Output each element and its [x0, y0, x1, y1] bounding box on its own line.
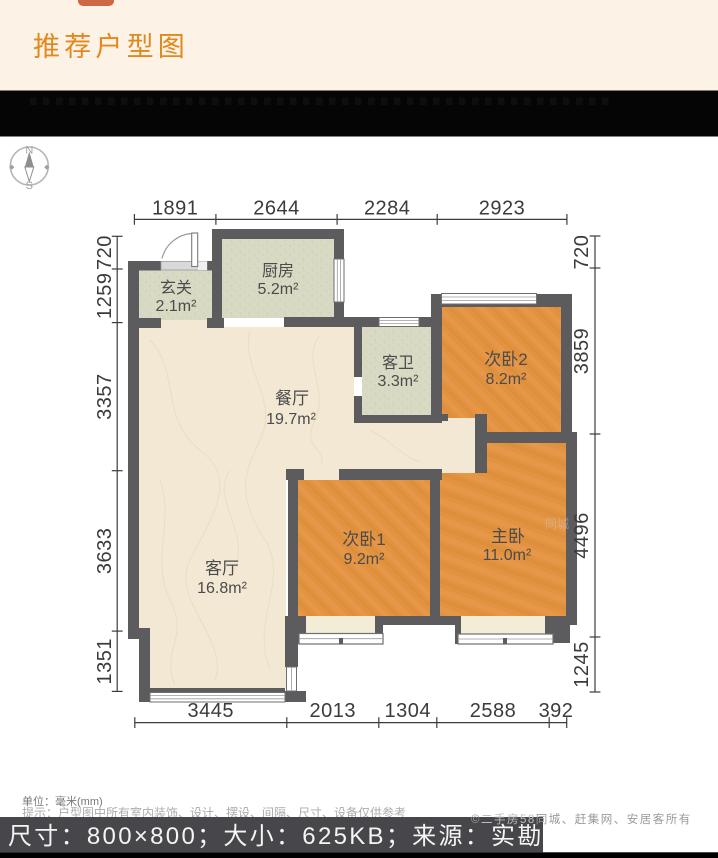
svg-text:11.0m²: 11.0m² — [483, 547, 532, 564]
svg-text:2588: 2588 — [470, 700, 517, 722]
svg-text:3445: 3445 — [188, 700, 235, 722]
svg-text:3859: 3859 — [571, 328, 593, 375]
svg-text:餐厅: 餐厅 — [275, 389, 309, 408]
svg-text:2284: 2284 — [364, 198, 411, 220]
svg-text:3357: 3357 — [94, 373, 116, 420]
svg-text:次卧2: 次卧2 — [484, 350, 527, 369]
svg-text:720: 720 — [571, 235, 593, 270]
svg-text:尺寸：800×800；大小：625KB；来源：实勘: 尺寸：800×800；大小：625KB；来源：实勘 — [8, 823, 544, 850]
svg-text:2923: 2923 — [479, 198, 526, 220]
svg-text:720: 720 — [94, 235, 116, 270]
svg-text:2013: 2013 — [310, 700, 357, 722]
svg-text:392: 392 — [539, 700, 574, 722]
svg-text:玄关: 玄关 — [160, 279, 192, 297]
svg-text:客卫: 客卫 — [382, 354, 414, 372]
svg-text:2644: 2644 — [253, 198, 300, 220]
svg-text:客厅: 客厅 — [205, 559, 239, 578]
svg-text:8.2m²: 8.2m² — [486, 371, 528, 388]
svg-text:1245: 1245 — [571, 641, 593, 688]
svg-text:1351: 1351 — [94, 638, 116, 685]
svg-text:2.1m²: 2.1m² — [156, 298, 198, 315]
svg-text:4496: 4496 — [571, 512, 593, 559]
svg-text:1891: 1891 — [152, 198, 199, 220]
svg-text:主卧: 主卧 — [491, 527, 525, 546]
svg-text:9.2m²: 9.2m² — [344, 551, 386, 568]
svg-text:1259: 1259 — [94, 273, 116, 320]
svg-text:厨房: 厨房 — [262, 262, 294, 280]
svg-text:3.3m²: 3.3m² — [378, 373, 420, 390]
svg-text:19.7m²: 19.7m² — [266, 411, 316, 428]
svg-text:5.2m²: 5.2m² — [258, 281, 300, 298]
svg-text:同城: 同城 — [545, 517, 569, 531]
svg-text:推荐户型图: 推荐户型图 — [33, 32, 189, 62]
svg-text:16.8m²: 16.8m² — [197, 580, 247, 597]
svg-text:次卧1: 次卧1 — [342, 530, 385, 549]
svg-text:1304: 1304 — [385, 700, 432, 722]
svg-text:3633: 3633 — [94, 528, 116, 575]
